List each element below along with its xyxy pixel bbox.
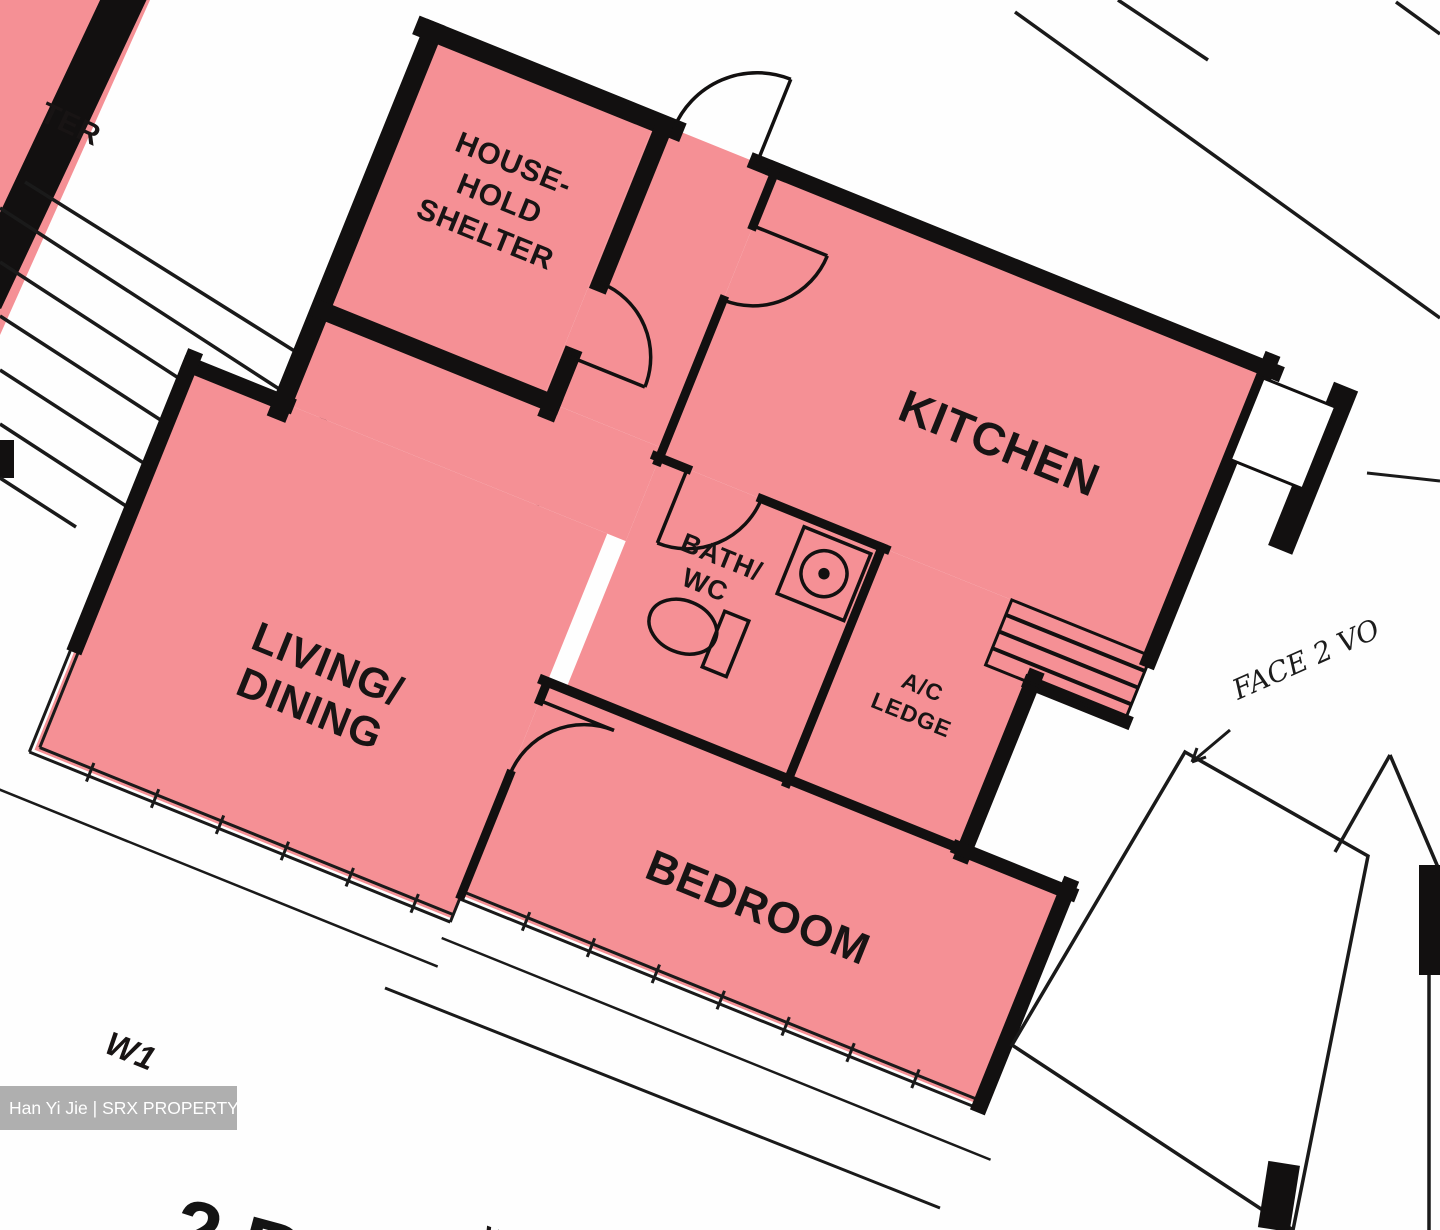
bottom-window-label: W — [478, 1221, 517, 1230]
basin-drain — [819, 568, 829, 578]
adjacent-void-outline — [1012, 752, 1368, 1230]
boundary-line — [1015, 12, 1440, 318]
floorplan-screenshot: TER — [0, 0, 1440, 1230]
handwritten-void-note: FACE 2 VO — [1227, 612, 1385, 707]
bottom-caption: 2 RO — [163, 1181, 371, 1230]
window-w1-label: W1 — [100, 1024, 162, 1078]
watermark-text: Han Yi Jie | SRX PROPERTY — [9, 1098, 239, 1118]
watermark: Han Yi Jie | SRX PROPERTY — [0, 1086, 239, 1130]
stair-tread — [0, 424, 126, 506]
leader-line — [1367, 473, 1440, 481]
floorplan-canvas: TER — [0, 0, 1440, 1230]
wall-pier — [1419, 865, 1440, 975]
boundary-line — [1118, 0, 1208, 60]
stair-tread — [0, 478, 76, 527]
door-leaf-entrance — [757, 79, 791, 162]
boundary-line — [1390, 755, 1440, 872]
leader-arrow-line — [1192, 730, 1230, 762]
boundary-line — [1396, 2, 1440, 34]
boundary-line — [1335, 755, 1390, 852]
adjacent-unit-fragment: TER — [0, 0, 150, 478]
wall-stub — [0, 440, 14, 478]
